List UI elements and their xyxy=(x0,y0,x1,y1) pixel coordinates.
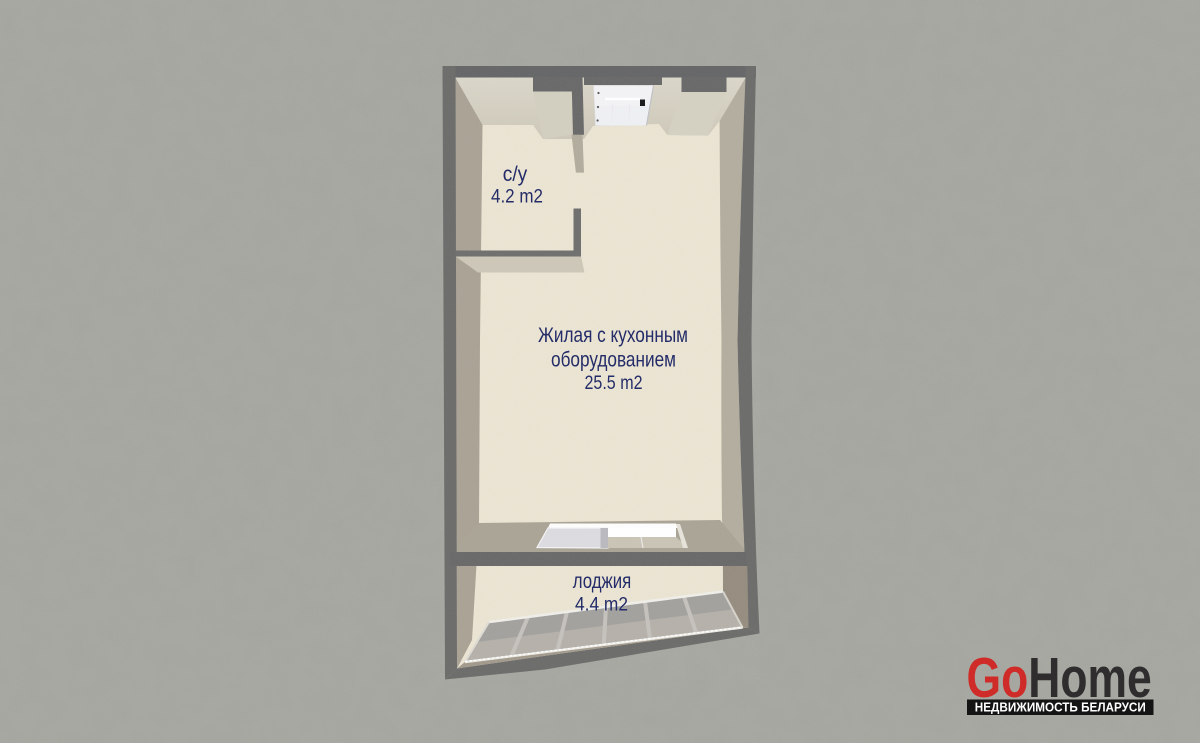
svg-text:с/у: с/у xyxy=(503,163,528,186)
svg-text:Жилая с кухонным: Жилая с кухонным xyxy=(538,324,688,347)
svg-text:НЕДВИЖИМОСТЬ БЕЛАРУСИ: НЕДВИЖИМОСТЬ БЕЛАРУСИ xyxy=(975,700,1146,715)
svg-text:4.4 m2: 4.4 m2 xyxy=(575,594,628,616)
svg-text:25.5 m2: 25.5 m2 xyxy=(585,372,643,394)
svg-text:оборудованием: оборудованием xyxy=(551,349,676,372)
svg-text:лоджия: лоджия xyxy=(573,570,632,593)
svg-text:4.2 m2: 4.2 m2 xyxy=(491,187,543,208)
